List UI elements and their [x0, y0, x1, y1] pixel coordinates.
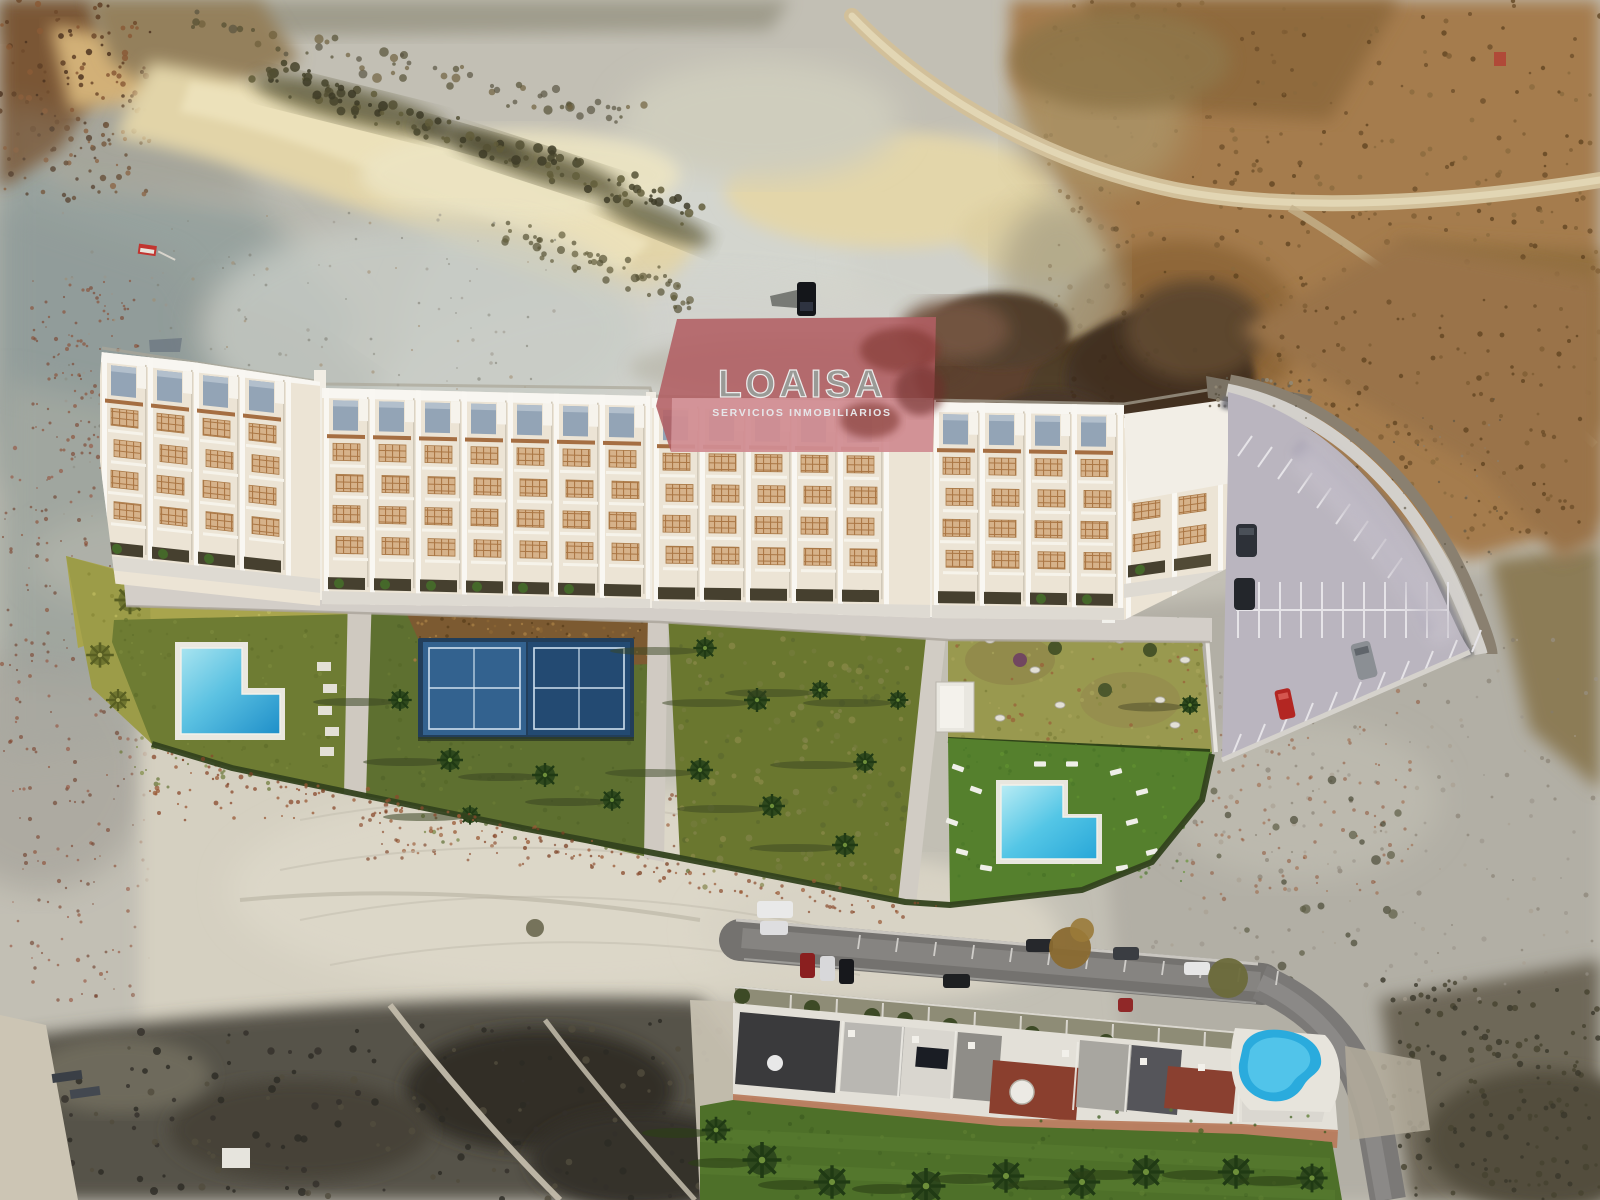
svg-text:SERVICIOS INMOBILIARIOS: SERVICIOS INMOBILIARIOS: [712, 407, 892, 419]
svg-text:LOAISA: LOAISA: [718, 363, 886, 406]
